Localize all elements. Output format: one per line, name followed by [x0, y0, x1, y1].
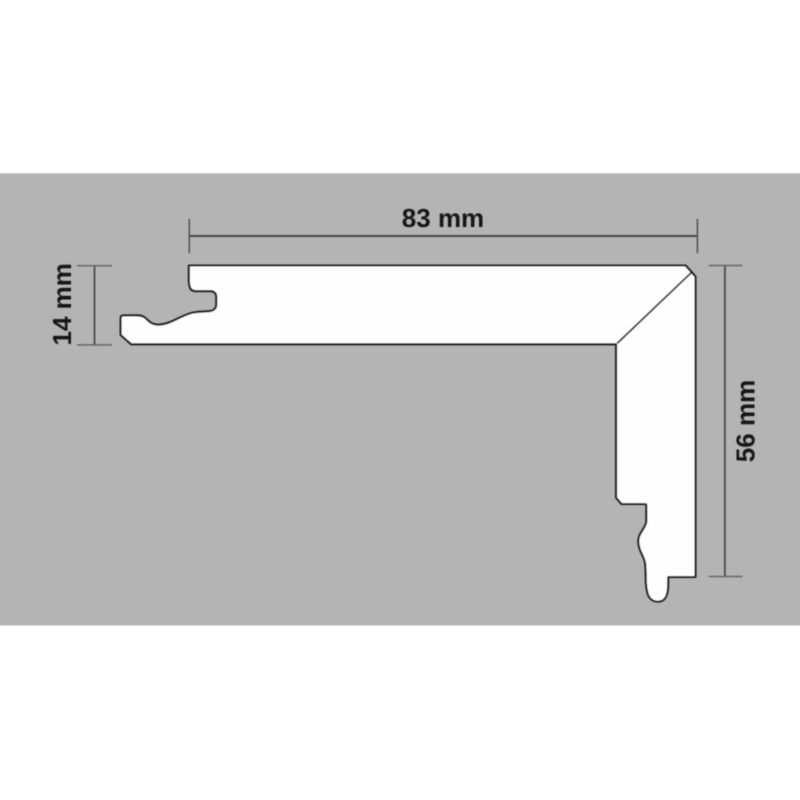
- svg-text:14 mm: 14 mm: [47, 263, 77, 345]
- svg-text:83 mm: 83 mm: [402, 203, 484, 233]
- svg-text:56 mm: 56 mm: [731, 380, 761, 462]
